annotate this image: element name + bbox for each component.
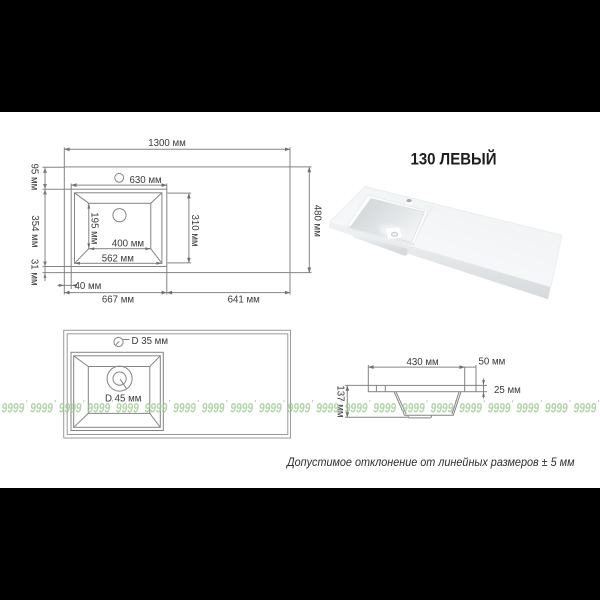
svg-text:95 мм: 95 мм (29, 164, 40, 191)
svg-text:9999: 9999 (288, 400, 311, 415)
svg-text:9999: 9999 (145, 400, 168, 415)
svg-text:630 мм: 630 мм (130, 175, 162, 186)
svg-text:9999: 9999 (345, 400, 368, 415)
svg-text:9999: 9999 (230, 400, 253, 415)
svg-text:430 мм: 430 мм (407, 357, 439, 368)
svg-text:D 35 мм: D 35 мм (132, 336, 168, 347)
svg-text:310 мм: 310 мм (189, 215, 200, 247)
svg-text:9999: 9999 (373, 400, 396, 415)
svg-text:9999: 9999 (431, 400, 454, 415)
svg-text:Допустимое отклонение от линей: Допустимое отклонение от линейных размер… (285, 455, 574, 469)
svg-text:9999: 9999 (87, 400, 110, 415)
svg-text:9999: 9999 (488, 400, 511, 415)
svg-text:667 мм: 667 мм (102, 294, 134, 305)
svg-text:480 мм: 480 мм (312, 205, 323, 237)
svg-text:1300 мм: 1300 мм (148, 138, 186, 149)
svg-text:25 мм: 25 мм (494, 385, 521, 396)
svg-text:9999: 9999 (59, 400, 82, 415)
svg-text:562 мм: 562 мм (102, 254, 134, 265)
svg-text:130 ЛЕВЫЙ: 130 ЛЕВЫЙ (411, 150, 497, 169)
svg-text:9999: 9999 (574, 400, 597, 415)
svg-text:9999: 9999 (459, 400, 482, 415)
svg-text:195 мм: 195 мм (89, 212, 100, 244)
svg-text:9999: 9999 (2, 400, 25, 415)
svg-text:9999: 9999 (173, 400, 196, 415)
svg-text:40 мм: 40 мм (75, 281, 102, 292)
svg-text:400 мм: 400 мм (112, 239, 144, 250)
svg-text:9999: 9999 (202, 400, 225, 415)
svg-text:31 мм: 31 мм (29, 259, 40, 286)
svg-text:9999: 9999 (30, 400, 53, 415)
svg-text:641 мм: 641 мм (228, 294, 260, 305)
svg-text:50 мм: 50 мм (479, 357, 506, 368)
svg-text:9999: 9999 (516, 400, 539, 415)
svg-text:9999: 9999 (116, 400, 139, 415)
svg-text:9999: 9999 (316, 400, 339, 415)
svg-text:354 мм: 354 мм (29, 215, 40, 247)
svg-text:9999: 9999 (402, 400, 425, 415)
svg-text:9999: 9999 (545, 400, 568, 415)
svg-text:9999: 9999 (259, 400, 282, 415)
